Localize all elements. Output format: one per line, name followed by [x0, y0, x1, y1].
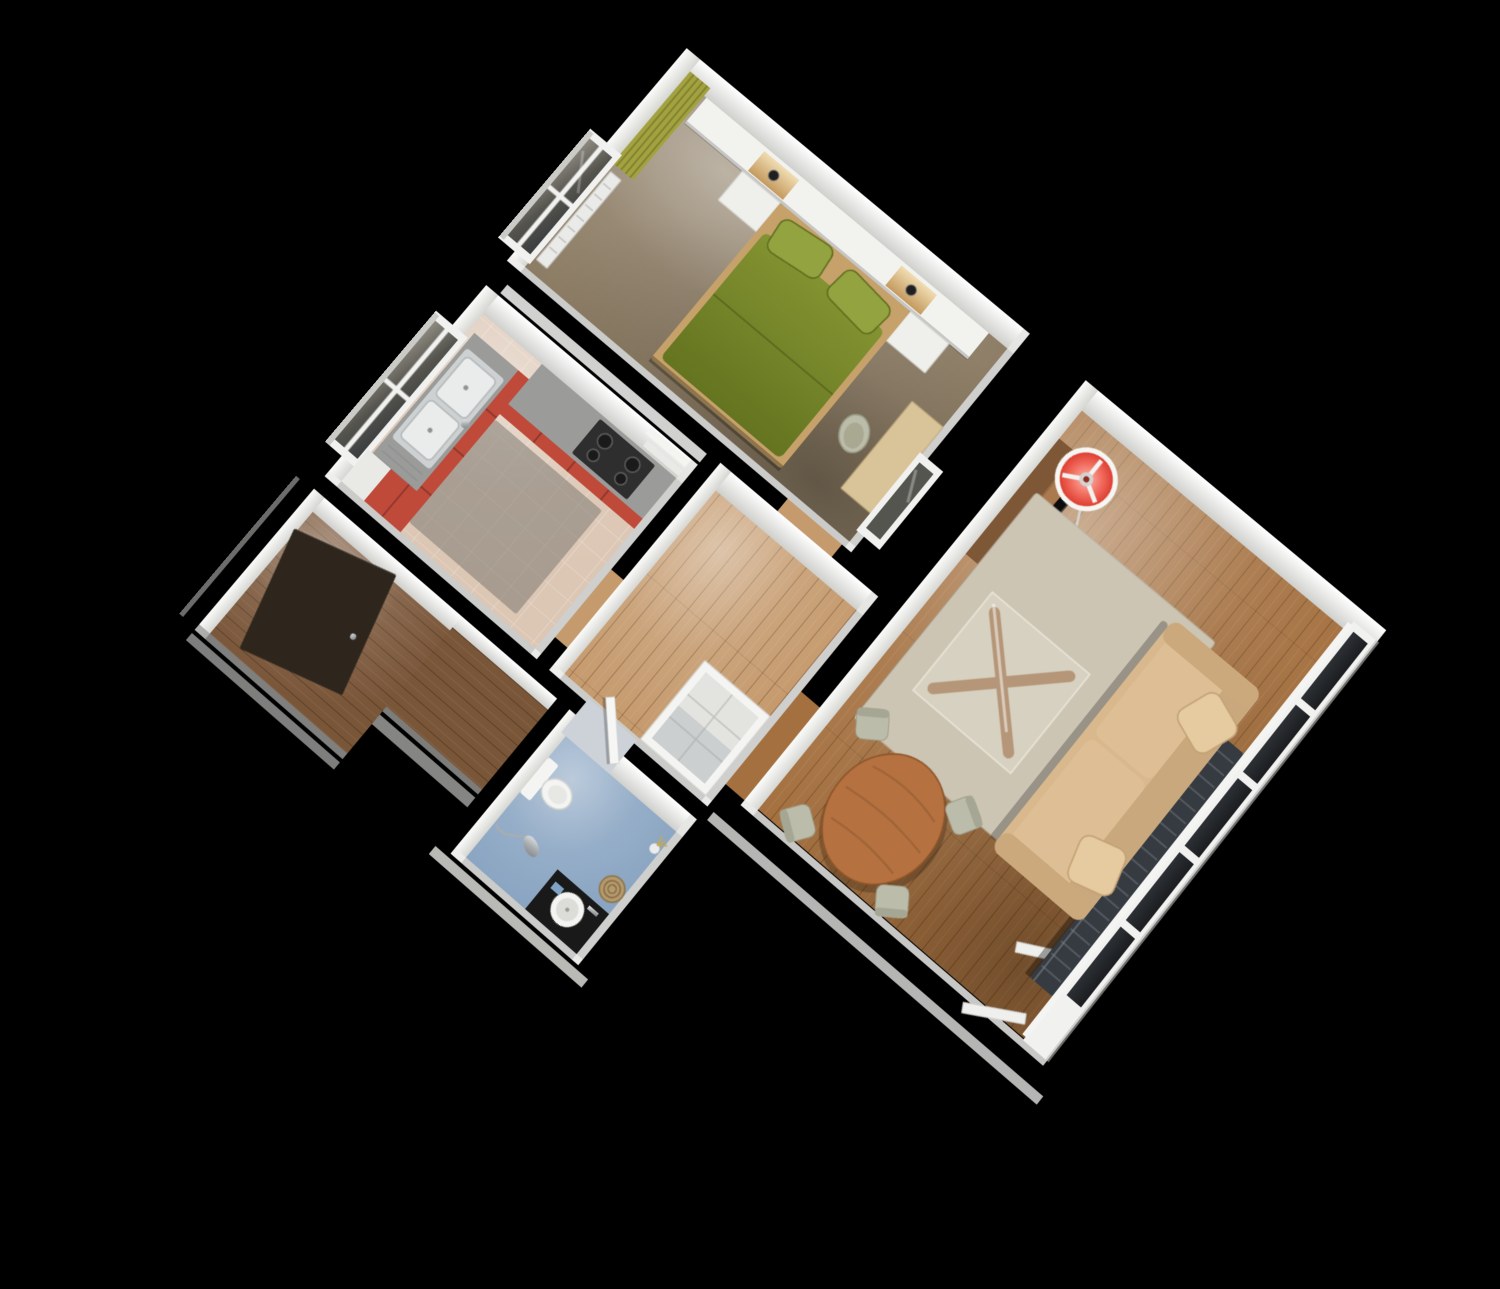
apartment-3d-floorplan: [158, 18, 1419, 1289]
black-background: [0, 0, 1500, 1073]
floorplan-svg: [158, 18, 1419, 1289]
dining-chair-nw: [855, 707, 890, 741]
dining-chair-se: [875, 884, 910, 919]
